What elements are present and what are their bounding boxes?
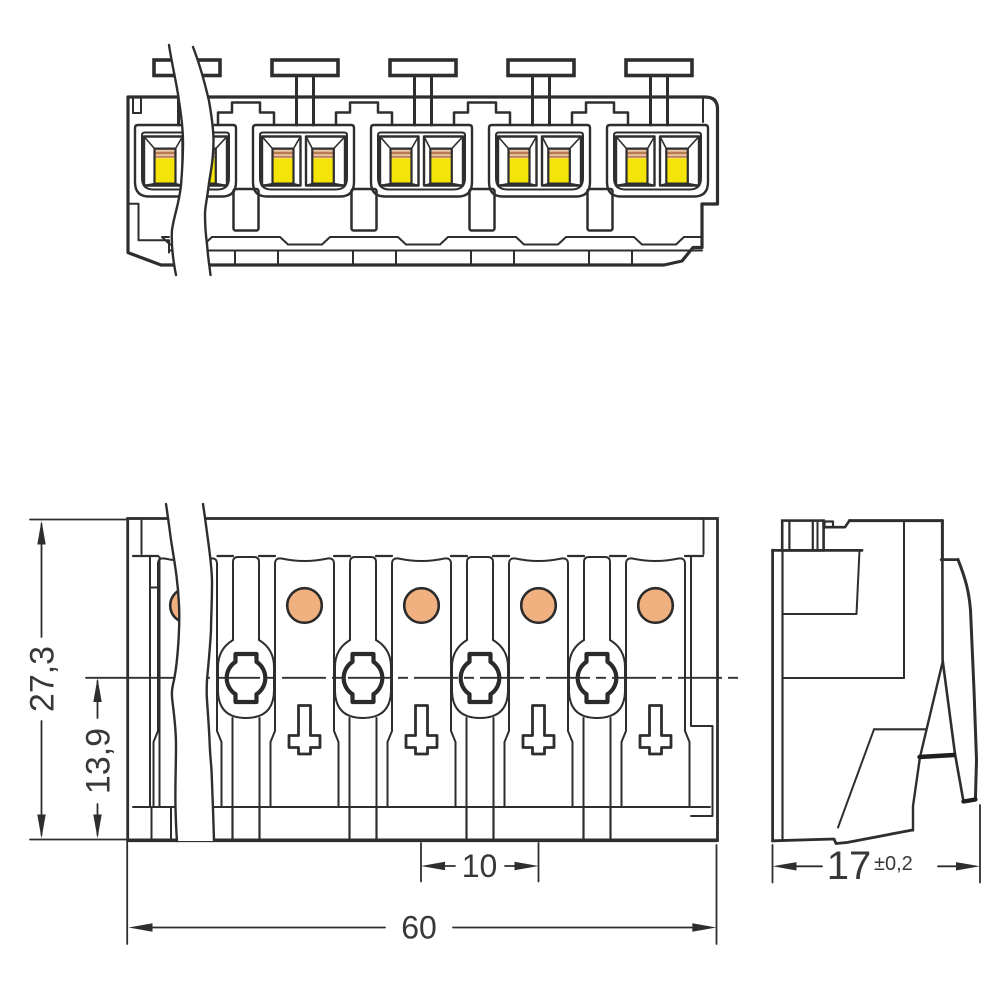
svg-text:±0,2: ±0,2 [874, 853, 913, 875]
svg-text:13,9: 13,9 [80, 728, 118, 794]
svg-text:27,3: 27,3 [24, 646, 62, 712]
svg-text:60: 60 [401, 910, 437, 946]
svg-text:17: 17 [827, 844, 872, 888]
svg-text:10: 10 [462, 848, 498, 884]
